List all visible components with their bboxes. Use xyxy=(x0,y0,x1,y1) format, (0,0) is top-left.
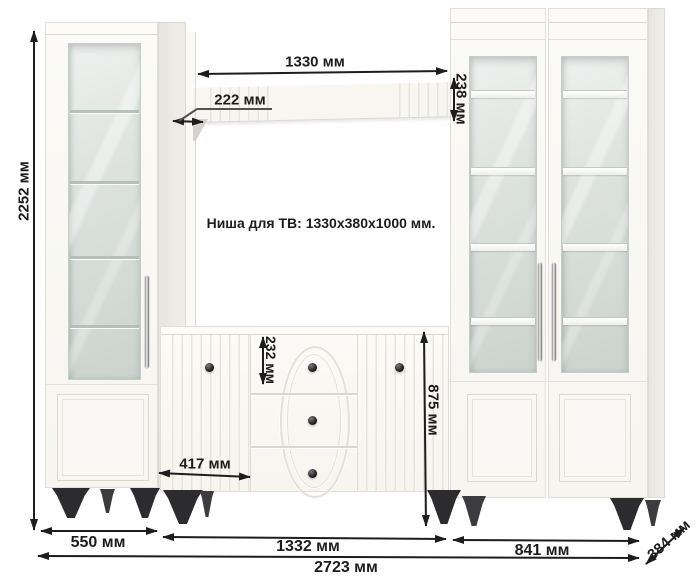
left-cabinet-handle xyxy=(145,276,149,368)
dim-label-total-height: 2252 мм xyxy=(16,161,33,221)
drawer-knob-3 xyxy=(308,469,317,478)
right-cabinet-b-top xyxy=(549,9,647,23)
left-cabinet-glass-door xyxy=(46,35,159,384)
dim-line-shelf-width xyxy=(198,71,447,74)
left-cabinet-lower-panel xyxy=(46,384,159,490)
right-cabinet-b-leg-right xyxy=(610,498,644,530)
left-cabinet-glass xyxy=(68,43,141,380)
dim-label-width-total: 2723 мм xyxy=(314,559,378,577)
drawer-divider xyxy=(251,446,357,449)
white-shelf xyxy=(563,167,627,175)
glass-shelf xyxy=(70,181,139,185)
right-cabinet-a-glass xyxy=(469,56,537,373)
sideboard-left-door-knob xyxy=(205,363,214,372)
dim-line-width-right xyxy=(453,540,639,541)
niche-note: Ниша для ТВ: 1330x380x1000 мм. xyxy=(207,215,436,231)
furniture-diagram: 2252 мм 1330 мм 222 мм 238 мм Ниша для Т… xyxy=(0,0,700,577)
sideboard-right-door-knob xyxy=(395,363,404,372)
white-shelf xyxy=(471,243,535,251)
right-cabinet-b xyxy=(548,8,648,498)
white-shelf xyxy=(563,243,627,251)
dim-label-width-center: 1332 мм xyxy=(276,538,340,556)
dim-label-width-right: 841 мм xyxy=(515,542,570,560)
right-cabinet-b-lower-panel xyxy=(549,381,649,500)
left-cabinet-leg-back xyxy=(100,489,115,513)
dim-label-shelf-depth: 222 мм xyxy=(214,92,265,109)
white-shelf xyxy=(471,167,535,175)
right-cabinet-a-lower-panel xyxy=(451,381,547,500)
dim-label-door-width: 417 мм xyxy=(179,456,230,473)
glass-shelf xyxy=(70,110,139,114)
sideboard-leg-right xyxy=(427,490,461,524)
left-cabinet xyxy=(45,22,158,488)
right-cabinet-b-cornice xyxy=(549,39,647,40)
white-shelf xyxy=(471,90,535,98)
right-cabinet-b-glass xyxy=(561,56,629,373)
sideboard-top xyxy=(161,327,448,335)
glass-shelf xyxy=(70,256,139,260)
white-shelf xyxy=(563,90,627,98)
white-shelf xyxy=(471,317,535,325)
sideboard-leg-left xyxy=(163,490,203,524)
right-cabinet-b-leg-back xyxy=(645,500,661,526)
left-cabinet-leg-front-right xyxy=(130,488,160,518)
right-cabinet-b-side xyxy=(648,8,665,498)
drawer-knob-1 xyxy=(308,363,317,372)
white-shelf xyxy=(563,317,627,325)
right-cabinet-a-top xyxy=(451,9,545,23)
right-cabinet-b-panel-frame xyxy=(559,394,631,482)
left-cabinet-leg-front-left xyxy=(52,488,90,518)
dim-label-shelf-width: 1330 мм xyxy=(285,54,345,71)
right-cabinet-b-handle xyxy=(552,263,556,361)
dim-label-shelf-height: 238 мм xyxy=(453,73,470,124)
shelf-support-bracket xyxy=(193,119,208,141)
right-cabinet-a-handle xyxy=(538,263,542,361)
sideboard-leg-left-back xyxy=(200,491,214,517)
right-cabinet-a-panel-frame xyxy=(467,394,537,482)
drawer-knob-2 xyxy=(308,416,317,425)
right-cabinet-a-leg-left xyxy=(462,496,486,526)
niche-left-wall xyxy=(186,32,196,328)
left-cabinet-top xyxy=(46,23,157,35)
top-shelf-fluting-right xyxy=(391,82,449,117)
dim-label-sideboard-height: 875 мм xyxy=(425,384,442,435)
glass-shelf xyxy=(70,325,139,329)
left-cabinet-panel-frame xyxy=(57,394,149,481)
dim-label-width-left: 550 мм xyxy=(71,534,126,552)
dim-label-drawer-height: 232 мм xyxy=(263,336,279,384)
right-cabinet-a-cornice xyxy=(451,39,545,40)
drawer-divider xyxy=(251,393,357,396)
